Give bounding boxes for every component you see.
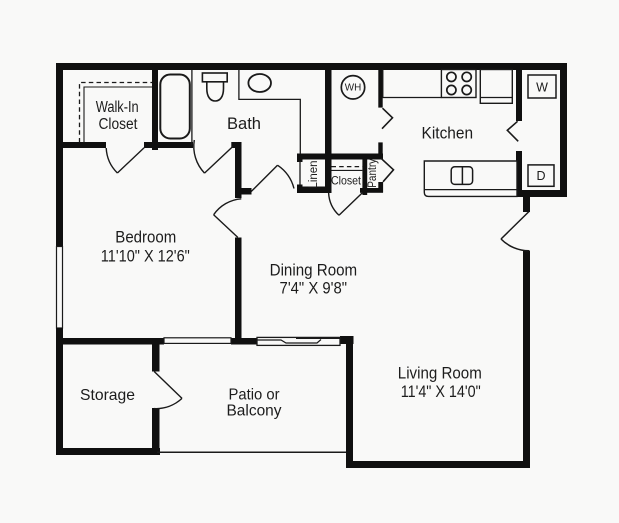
- svg-text:Balcony: Balcony: [227, 403, 282, 420]
- svg-text:Living Room: Living Room: [398, 363, 482, 382]
- svg-text:Linen: Linen: [308, 161, 320, 189]
- svg-text:11'4" X 14'0": 11'4" X 14'0": [401, 382, 481, 401]
- svg-text:D: D: [536, 169, 545, 183]
- svg-text:W: W: [536, 80, 548, 94]
- svg-text:Walk-In: Walk-In: [96, 99, 139, 116]
- svg-text:WH: WH: [345, 83, 362, 94]
- svg-text:Dining Room: Dining Room: [270, 260, 358, 279]
- svg-text:Patio or: Patio or: [229, 387, 281, 404]
- svg-text:Bath: Bath: [227, 115, 261, 133]
- svg-text:Closet: Closet: [99, 116, 139, 133]
- svg-text:Pantry: Pantry: [367, 159, 379, 188]
- svg-text:Bedroom: Bedroom: [115, 227, 176, 246]
- svg-text:Kitchen: Kitchen: [422, 124, 474, 143]
- svg-text:7'4" X 9'8": 7'4" X 9'8": [280, 279, 348, 298]
- svg-text:Storage: Storage: [80, 387, 135, 404]
- svg-text:Closet: Closet: [331, 174, 362, 188]
- svg-text:11'10" X 12'6": 11'10" X 12'6": [101, 247, 190, 266]
